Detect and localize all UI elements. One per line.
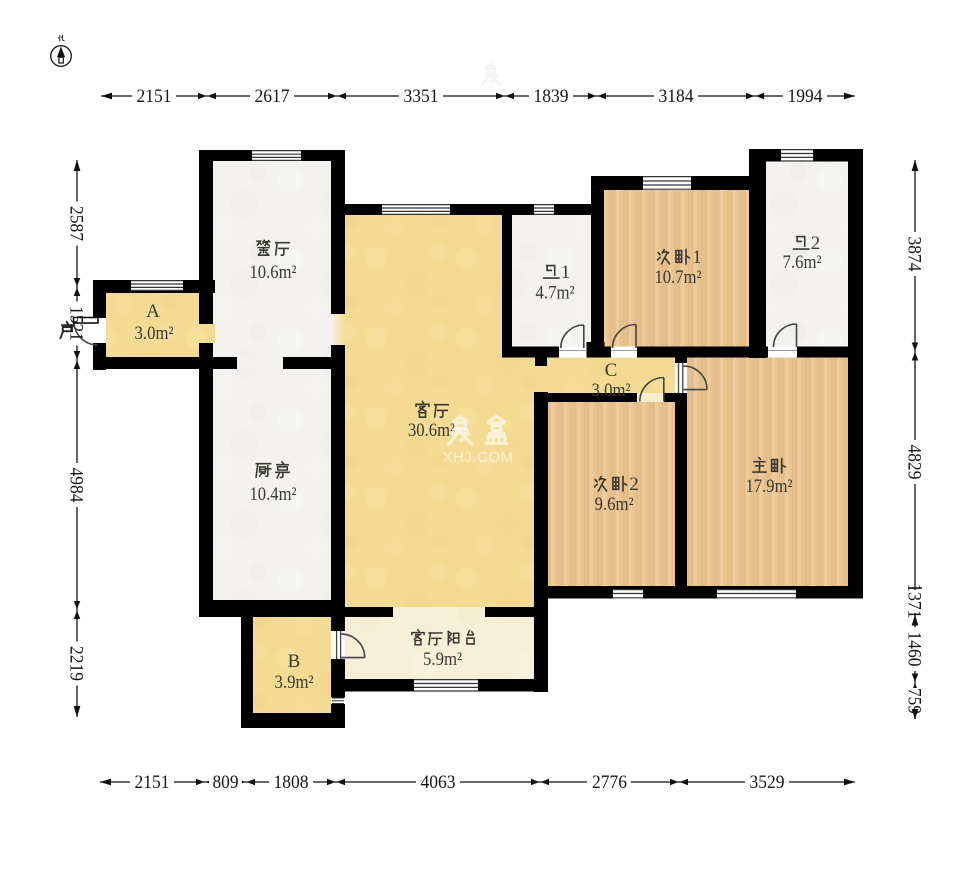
svg-text:1: 1 <box>561 262 571 283</box>
svg-text:3184: 3184 <box>659 86 694 107</box>
svg-text:17.9m²: 17.9m² <box>746 476 793 497</box>
svg-text:1808: 1808 <box>274 772 309 793</box>
svg-text:2219: 2219 <box>66 646 87 681</box>
svg-text:A: A <box>146 301 160 322</box>
svg-text:2151: 2151 <box>137 86 172 107</box>
svg-text:2: 2 <box>629 474 639 495</box>
svg-text:1521: 1521 <box>66 306 87 341</box>
svg-text:2776: 2776 <box>592 772 627 793</box>
svg-text:1: 1 <box>692 247 702 268</box>
svg-text:1994: 1994 <box>788 86 823 107</box>
svg-text:4829: 4829 <box>904 445 925 480</box>
svg-text:2: 2 <box>811 233 821 254</box>
svg-text:3.0m²: 3.0m² <box>135 323 174 344</box>
svg-text:4984: 4984 <box>66 468 87 503</box>
svg-text:5.9m²: 5.9m² <box>423 649 462 670</box>
svg-text:30.6m²: 30.6m² <box>408 420 455 441</box>
svg-text:1371: 1371 <box>904 584 925 619</box>
svg-text:4063: 4063 <box>421 772 456 793</box>
svg-text:809: 809 <box>213 772 239 793</box>
svg-text:1839: 1839 <box>534 86 569 107</box>
svg-text:4.7m²: 4.7m² <box>536 283 575 304</box>
svg-text:3.0m²: 3.0m² <box>592 380 631 401</box>
svg-text:3351: 3351 <box>404 86 439 107</box>
svg-text:C: C <box>605 360 618 381</box>
svg-text:XHJ.COM: XHJ.COM <box>443 449 514 466</box>
svg-text:10.7m²: 10.7m² <box>655 267 702 288</box>
svg-text:10.6m²: 10.6m² <box>250 262 297 283</box>
svg-text:3874: 3874 <box>904 237 925 272</box>
svg-text:3.9m²: 3.9m² <box>275 672 314 693</box>
svg-text:2617: 2617 <box>255 86 290 107</box>
svg-text:3529: 3529 <box>750 772 785 793</box>
svg-text:9.6m²: 9.6m² <box>595 494 634 515</box>
svg-text:10.4m²: 10.4m² <box>250 484 297 505</box>
svg-text:B: B <box>288 651 301 672</box>
svg-text:1460: 1460 <box>904 632 925 667</box>
svg-text:2587: 2587 <box>66 206 87 241</box>
svg-text:7.6m²: 7.6m² <box>783 252 822 273</box>
svg-text:2151: 2151 <box>135 772 170 793</box>
